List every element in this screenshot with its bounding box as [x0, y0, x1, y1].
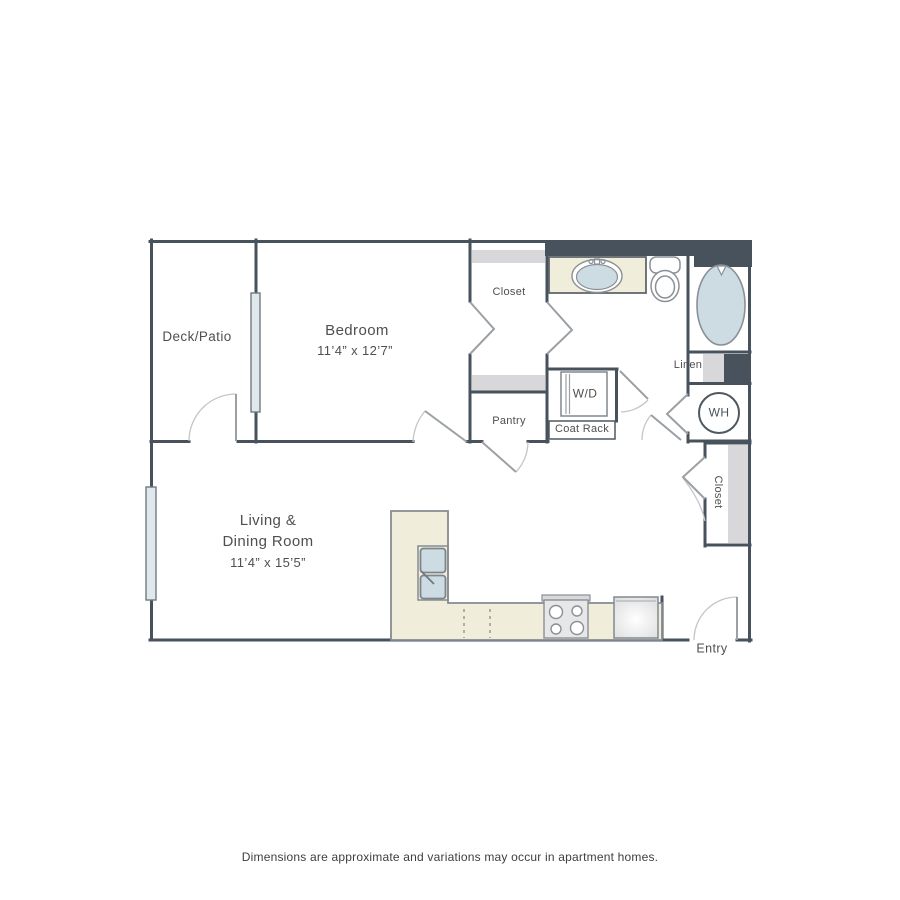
kitchen-sink-icon [418, 546, 448, 600]
deck-patio-label: Deck/Patio [162, 330, 231, 344]
disclaimer-text: Dimensions are approximate and variation… [242, 850, 658, 864]
entry-closet-label: Closet [711, 476, 723, 509]
living-dining-dimensions: 11’4” x 15’5” [230, 556, 306, 570]
bathtub-icon [697, 265, 745, 345]
water-heater-label: WH [709, 407, 730, 420]
linen-label: Linen [674, 360, 702, 372]
living-dining-label-line1: Living & [240, 513, 297, 529]
washer-dryer-label: W/D [573, 388, 598, 401]
pantry-label: Pantry [492, 416, 526, 428]
door-leaves [236, 302, 737, 640]
stove-icon [542, 595, 590, 638]
coat-rack-label: Coat Rack [555, 424, 609, 436]
bedroom-closet-label: Closet [493, 287, 526, 299]
bedroom-dimensions: 11’4” x 12’7” [317, 344, 393, 358]
floor-plan: Deck/Patio Bedroom 11’4” x 12’7” Closet … [0, 0, 900, 900]
bedroom-label: Bedroom [325, 323, 389, 339]
bathroom-sink-icon [549, 257, 646, 293]
living-dining-label-line2: Dining Room [222, 534, 313, 550]
toilet-icon [650, 257, 680, 302]
entry-label: Entry [696, 642, 727, 655]
refrigerator-icon [614, 597, 658, 638]
floor-plan-svg [0, 0, 900, 900]
